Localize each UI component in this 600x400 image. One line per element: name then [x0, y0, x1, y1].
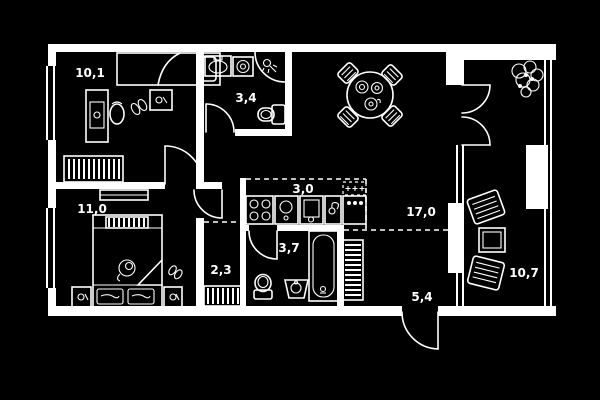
- room-label-kitchen: 3,0: [292, 182, 313, 196]
- room-label-balcony: 10,7: [509, 266, 539, 280]
- room-label-bedroom2: 11,0: [77, 202, 107, 216]
- room-label-hall: 2,3: [210, 263, 231, 277]
- room-label-bathroom1: 3,4: [235, 91, 256, 105]
- wall-bathroom2-top-right: [277, 225, 344, 231]
- wall-bathroom1-right: [285, 52, 292, 136]
- room-label-bathroom2: 3,7: [278, 241, 299, 255]
- room-label-entrance: 5,4: [411, 290, 432, 304]
- wall-bedroom2-hall: [196, 218, 204, 308]
- wall-left-a: [48, 44, 56, 66]
- wall-top-right: [450, 44, 556, 60]
- duct-shaft: [448, 203, 464, 273]
- floor-plan-canvas: 10,1 3,4: [0, 0, 600, 400]
- wall-bedroom1-bedroom2: [56, 182, 165, 189]
- storage-shelves-icon: [343, 240, 363, 300]
- wall-balcony-pier: [446, 52, 464, 85]
- wall-bottom-right: [438, 306, 556, 316]
- room-label-living: 17,0: [406, 205, 436, 219]
- wall-left-b: [48, 140, 56, 208]
- wall-bathroom1-bottom: [235, 129, 292, 136]
- glazing-pier: [526, 145, 548, 209]
- room-label-bedroom1: 10,1: [75, 66, 105, 80]
- wall-corridor-stub: [196, 182, 222, 189]
- wall-bathroom2-top-left: [240, 225, 249, 231]
